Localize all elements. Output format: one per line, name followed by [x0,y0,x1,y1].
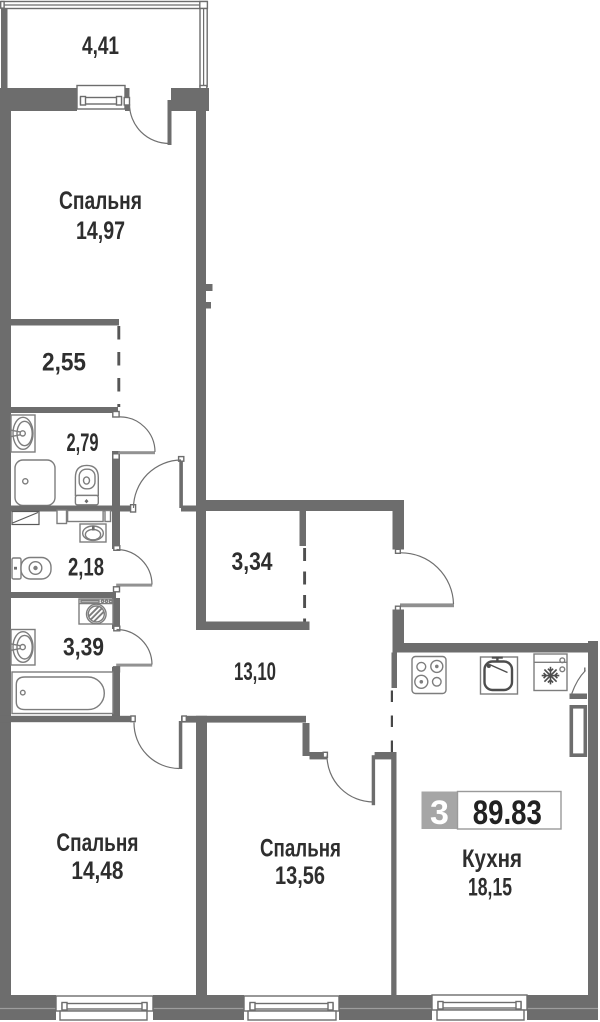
svg-text:Спальня: Спальня [56,829,138,857]
svg-text:Спальня: Спальня [59,187,142,215]
svg-text:13,56: 13,56 [275,862,325,890]
svg-text:18,15: 18,15 [468,874,512,902]
svg-text:Спальня: Спальня [260,835,341,863]
svg-text:3,39: 3,39 [63,634,104,662]
svg-text:14,48: 14,48 [71,857,123,885]
svg-text:14,97: 14,97 [76,217,125,245]
svg-text:2,79: 2,79 [67,429,99,457]
svg-text:2,18: 2,18 [68,554,104,582]
svg-text:3: 3 [430,794,449,832]
svg-text:3,34: 3,34 [232,548,273,576]
svg-text:89.83: 89.83 [473,794,542,832]
svg-text:2,55: 2,55 [42,349,86,377]
svg-text:4,41: 4,41 [82,32,119,60]
svg-text:Кухня: Кухня [462,845,522,873]
svg-text:13,10: 13,10 [234,658,276,686]
